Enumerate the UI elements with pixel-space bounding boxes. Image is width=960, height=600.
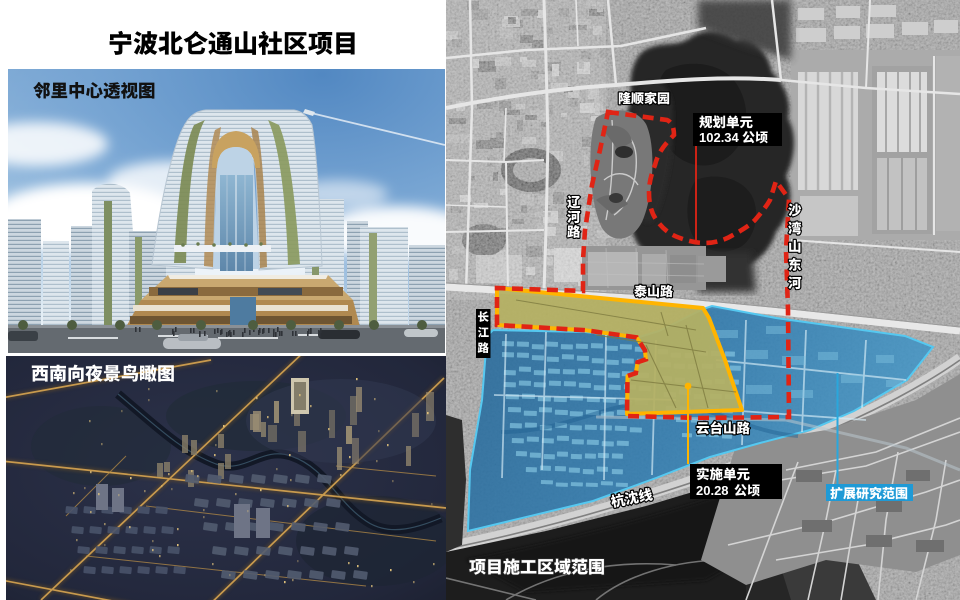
svg-text:102.34: 102.34 [699, 130, 740, 145]
svg-text:20.28: 20.28 [696, 483, 729, 498]
